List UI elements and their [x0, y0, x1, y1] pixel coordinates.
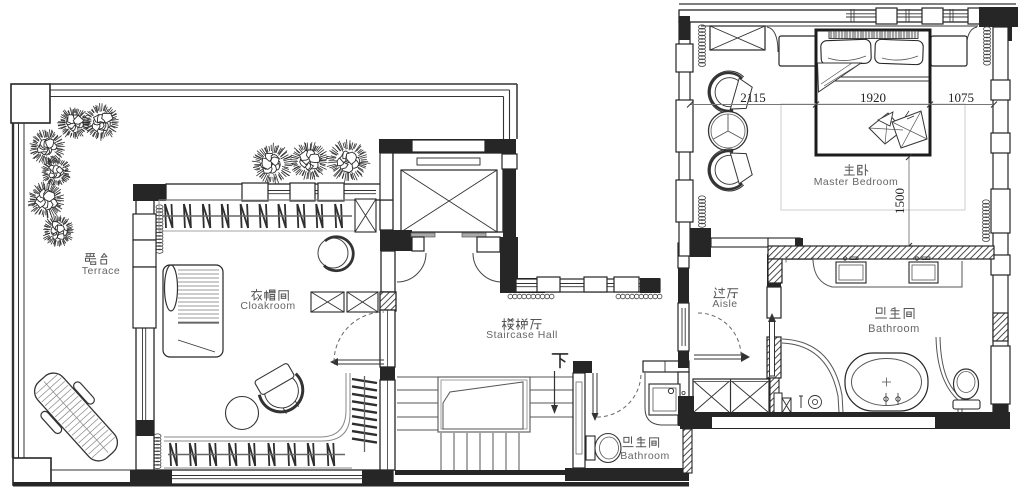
- svg-text:Cloakroom: Cloakroom: [240, 300, 295, 312]
- svg-text:Bathroom: Bathroom: [620, 450, 670, 462]
- svg-text:Master Bedroom: Master Bedroom: [814, 176, 899, 188]
- svg-text:Aisle: Aisle: [712, 298, 737, 310]
- svg-text:1920: 1920: [860, 90, 886, 105]
- svg-text:Bathroom: Bathroom: [868, 323, 920, 335]
- svg-text:1500: 1500: [892, 188, 907, 214]
- svg-text:2115: 2115: [740, 90, 766, 105]
- svg-text:Terrace: Terrace: [82, 265, 121, 277]
- svg-text:Staircase Hall: Staircase Hall: [486, 329, 558, 341]
- svg-text:1075: 1075: [948, 90, 974, 105]
